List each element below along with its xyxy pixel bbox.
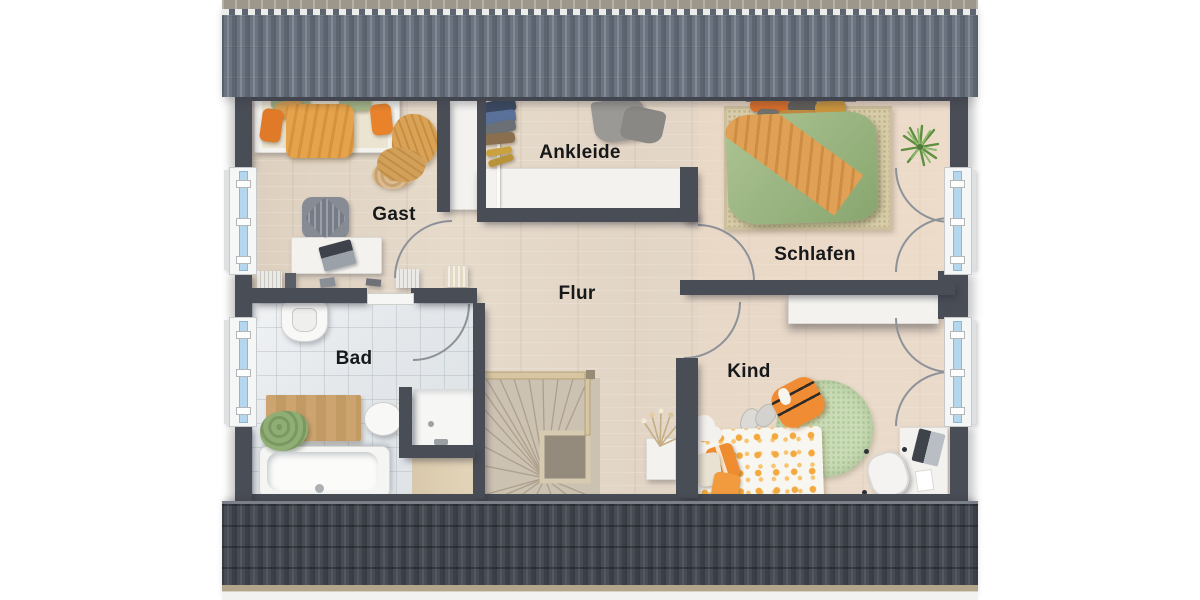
roof-ridge (222, 0, 978, 9)
window-handle (950, 407, 965, 415)
chair-wheel (902, 447, 907, 452)
papers (915, 469, 935, 492)
pillow (369, 103, 393, 136)
wall-hall-kid (676, 358, 698, 498)
chair-wheel (864, 449, 869, 454)
roof-tiles (222, 15, 978, 97)
bathroom-door-leaf (367, 293, 414, 305)
wall-left (235, 95, 252, 169)
window-handle (950, 331, 965, 339)
wall-guest-bath (250, 288, 367, 303)
window (229, 317, 257, 427)
wall-right (950, 95, 968, 169)
books (396, 269, 419, 288)
wall-right (950, 423, 968, 503)
books (445, 266, 468, 287)
window (944, 317, 972, 427)
room-label-flur: Flur (558, 283, 595, 305)
wall-shower (399, 445, 475, 458)
desk-item (366, 278, 382, 287)
shower-drain (428, 421, 434, 427)
window-handle (236, 218, 251, 226)
books (257, 271, 282, 288)
wall-closet-divider (477, 97, 486, 208)
window-handle (950, 369, 965, 377)
roof-tiles (222, 501, 978, 585)
wall-bedroom-kid (680, 280, 955, 295)
window-handle (950, 218, 965, 226)
sink-basin (292, 308, 317, 332)
wall-bath-stair (473, 303, 485, 499)
room-label-schlafen: Schlafen (774, 244, 856, 266)
roof-bottom (222, 501, 978, 600)
window (944, 167, 972, 275)
double-bed-duvet (725, 110, 879, 225)
window-handle (236, 180, 251, 188)
wall-left (235, 423, 252, 503)
window (229, 167, 257, 275)
roof-gutter (222, 591, 978, 600)
room-label-gast: Gast (372, 204, 415, 226)
room-label-ankleide: Ankleide (539, 142, 621, 164)
room-label-kind: Kind (727, 361, 770, 383)
wardrobe-tall (449, 97, 479, 210)
books (285, 273, 296, 288)
bath-counter (412, 456, 473, 495)
window-handle (236, 369, 251, 377)
window-handle (236, 331, 251, 339)
floor-plan-screenshot: Gast Ankleide Schlafen Flur Bad Kind (0, 0, 1200, 600)
wall-shower (399, 387, 412, 449)
kid-shelf (788, 294, 939, 324)
flower-pedestal (646, 438, 676, 480)
wall-guest-bath (411, 288, 477, 303)
window-handle (236, 256, 251, 264)
duvet-orange-throw (725, 110, 863, 215)
guest-bed-blanket (286, 104, 354, 158)
window-handle (950, 180, 965, 188)
toilet (364, 402, 402, 436)
window-handle (950, 256, 965, 264)
wall-closet-bedroom (680, 167, 698, 222)
wall-right (938, 271, 968, 319)
wall-closet-hall (477, 208, 698, 222)
tub-faucet (315, 484, 324, 493)
roof-top (222, 0, 978, 97)
wall-guest-hall (437, 97, 450, 212)
window-handle (236, 407, 251, 415)
sideboard (479, 168, 682, 210)
room-label-bad: Bad (336, 348, 373, 370)
